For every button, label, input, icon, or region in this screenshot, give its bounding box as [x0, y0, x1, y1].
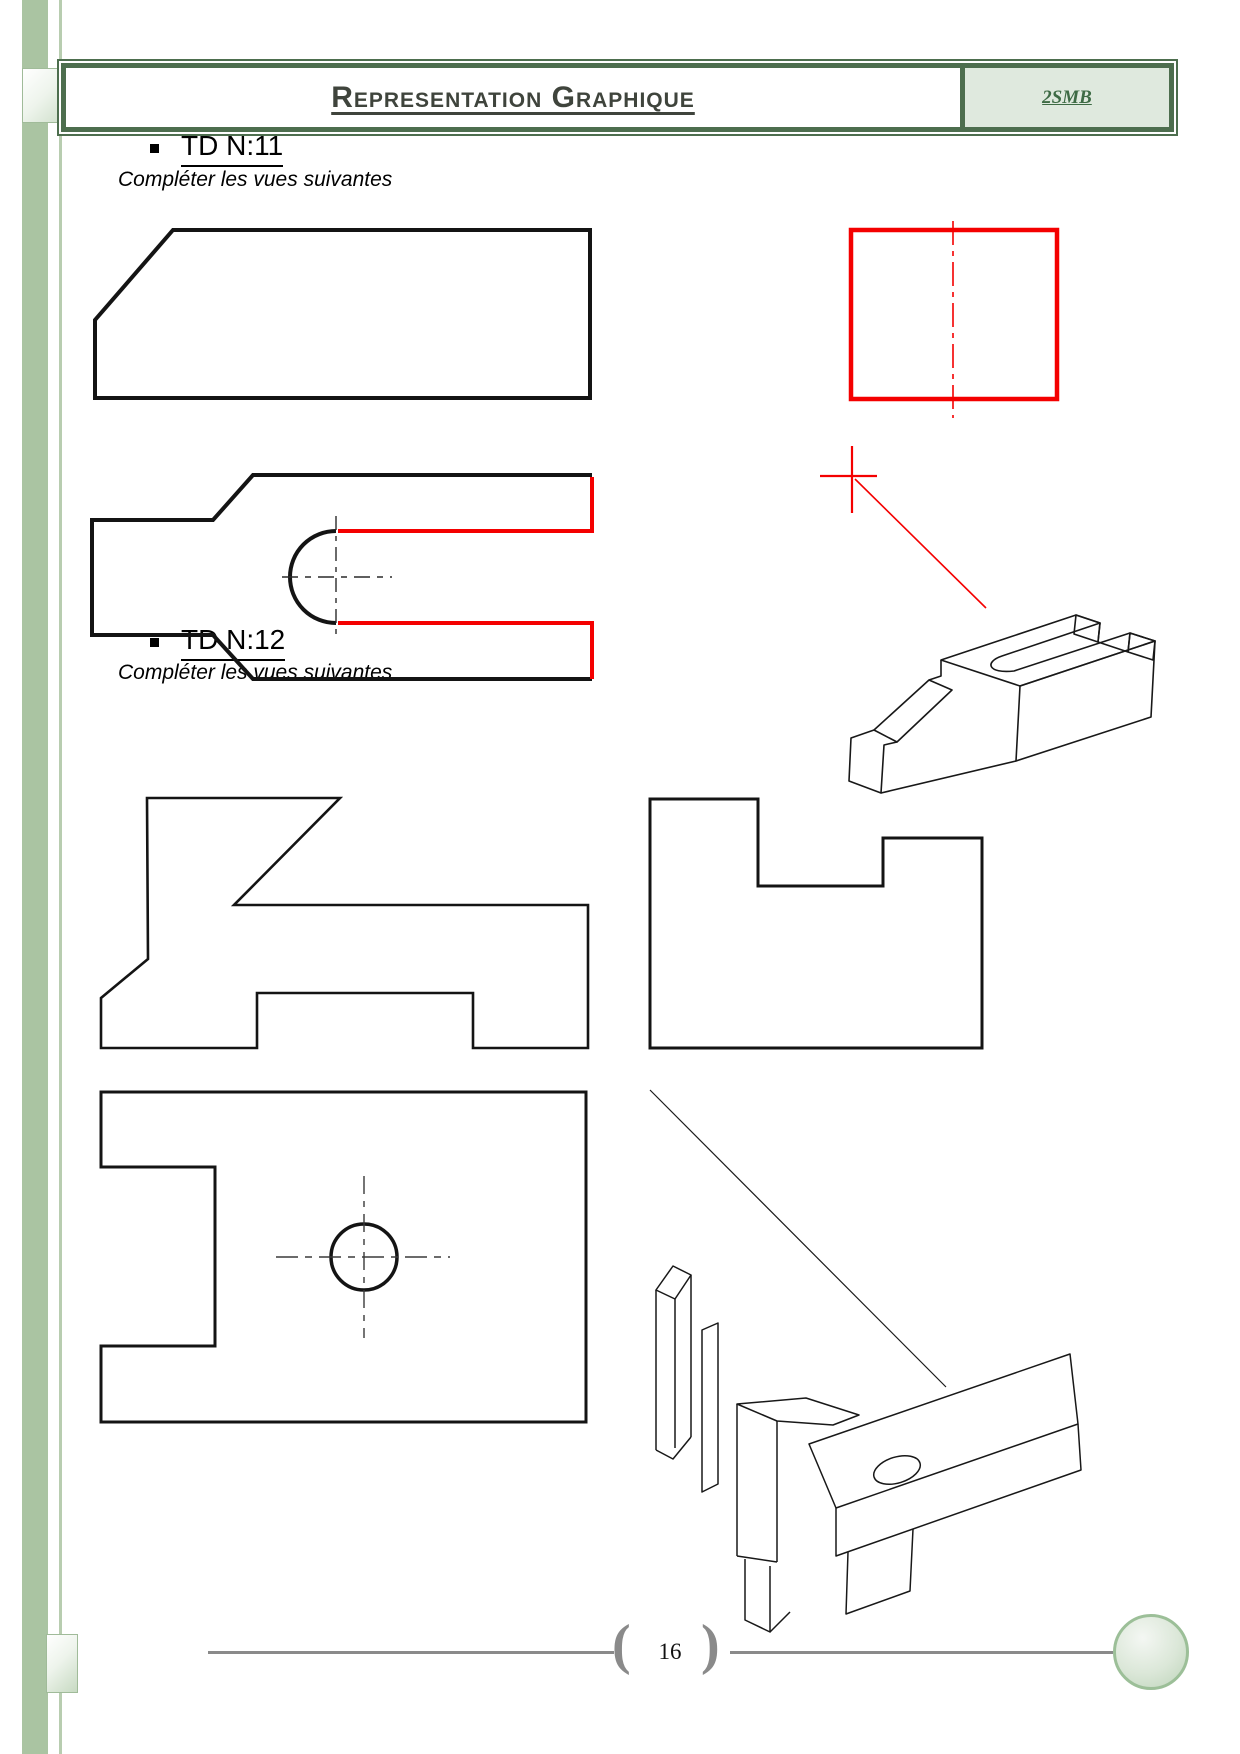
footer-rule-left [208, 1651, 614, 1654]
technical-drawings-layer [0, 0, 1240, 1754]
td11-isometric-view [849, 615, 1155, 793]
td12-side-view [650, 799, 982, 1048]
td12-top-view [101, 1092, 586, 1422]
td11-side-view-red [851, 221, 1057, 418]
td12-projection-line [650, 1090, 946, 1387]
td11-top-view [92, 475, 592, 679]
page-number-bracket-open: ( [612, 1617, 631, 1673]
document-page: Representation Graphique 2SMB TD N:11 Co… [0, 0, 1240, 1754]
page-number: 16 [638, 1639, 702, 1665]
footer-rule-right [730, 1651, 1113, 1654]
td11-front-view [95, 230, 590, 398]
td12-isometric-view [656, 1266, 1081, 1632]
td11-projection-cross [820, 446, 986, 608]
td12-front-view [101, 798, 588, 1048]
footer-green-circle [1113, 1614, 1189, 1690]
page-number-bracket-close: ) [701, 1617, 720, 1673]
